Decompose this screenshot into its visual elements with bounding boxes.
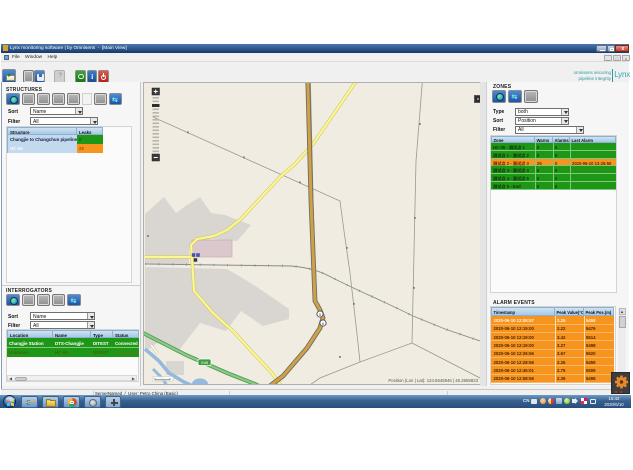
- svg-text:G45: G45: [201, 360, 209, 365]
- svg-text:Position (Lon | Lat): 124.564: Position (Lon | Lat): 124.5645946 | 45.2…: [388, 378, 478, 383]
